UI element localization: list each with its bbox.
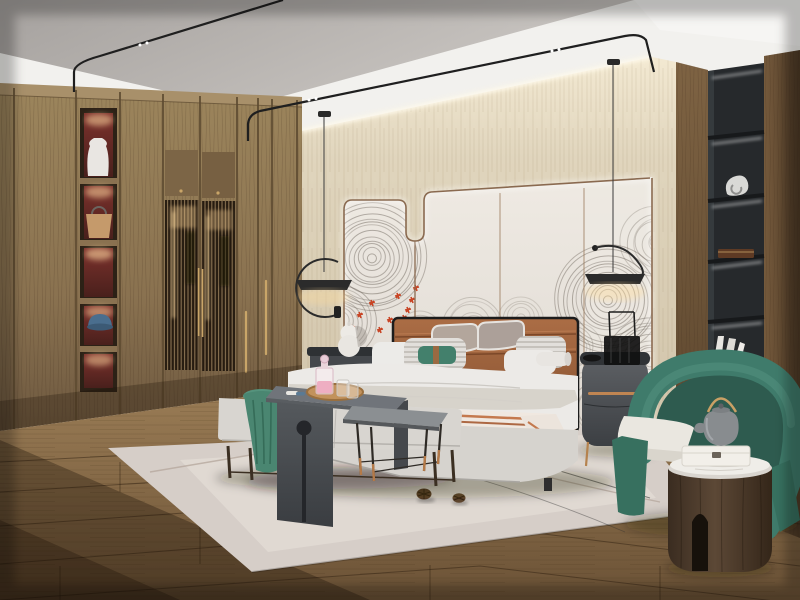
cabinet-knob [179,189,182,192]
canopy [607,59,620,65]
console-hole [297,421,312,436]
bedroom-photo [0,0,800,600]
wooden-box [718,249,754,258]
wardrobe [0,83,302,431]
table-cylinder [668,468,772,572]
armchair-front-leg [612,436,648,516]
canopy [318,111,331,117]
cabinet-knob [216,191,219,194]
top-cabinet-left [165,150,198,196]
pillow-strap [433,346,439,364]
teapot-knob [718,403,723,408]
bolster-end [565,352,572,366]
top-cabinet-right [202,152,235,198]
bedroom-render [0,0,800,600]
display-niches [80,108,117,392]
white-vase [87,138,108,176]
lamp-shade [585,274,645,284]
lamp-glow [298,289,350,305]
small-blue-object [296,392,305,396]
white-box [682,446,750,466]
glasses [337,380,358,398]
black-bowl [583,355,601,362]
box-clasp [712,452,721,458]
lamp-glow [585,283,645,301]
bed-foot [544,478,552,491]
console-slot [302,434,306,522]
counterweight [334,306,341,318]
lamp-shade [296,280,352,290]
cylinder-notch [692,514,708,571]
